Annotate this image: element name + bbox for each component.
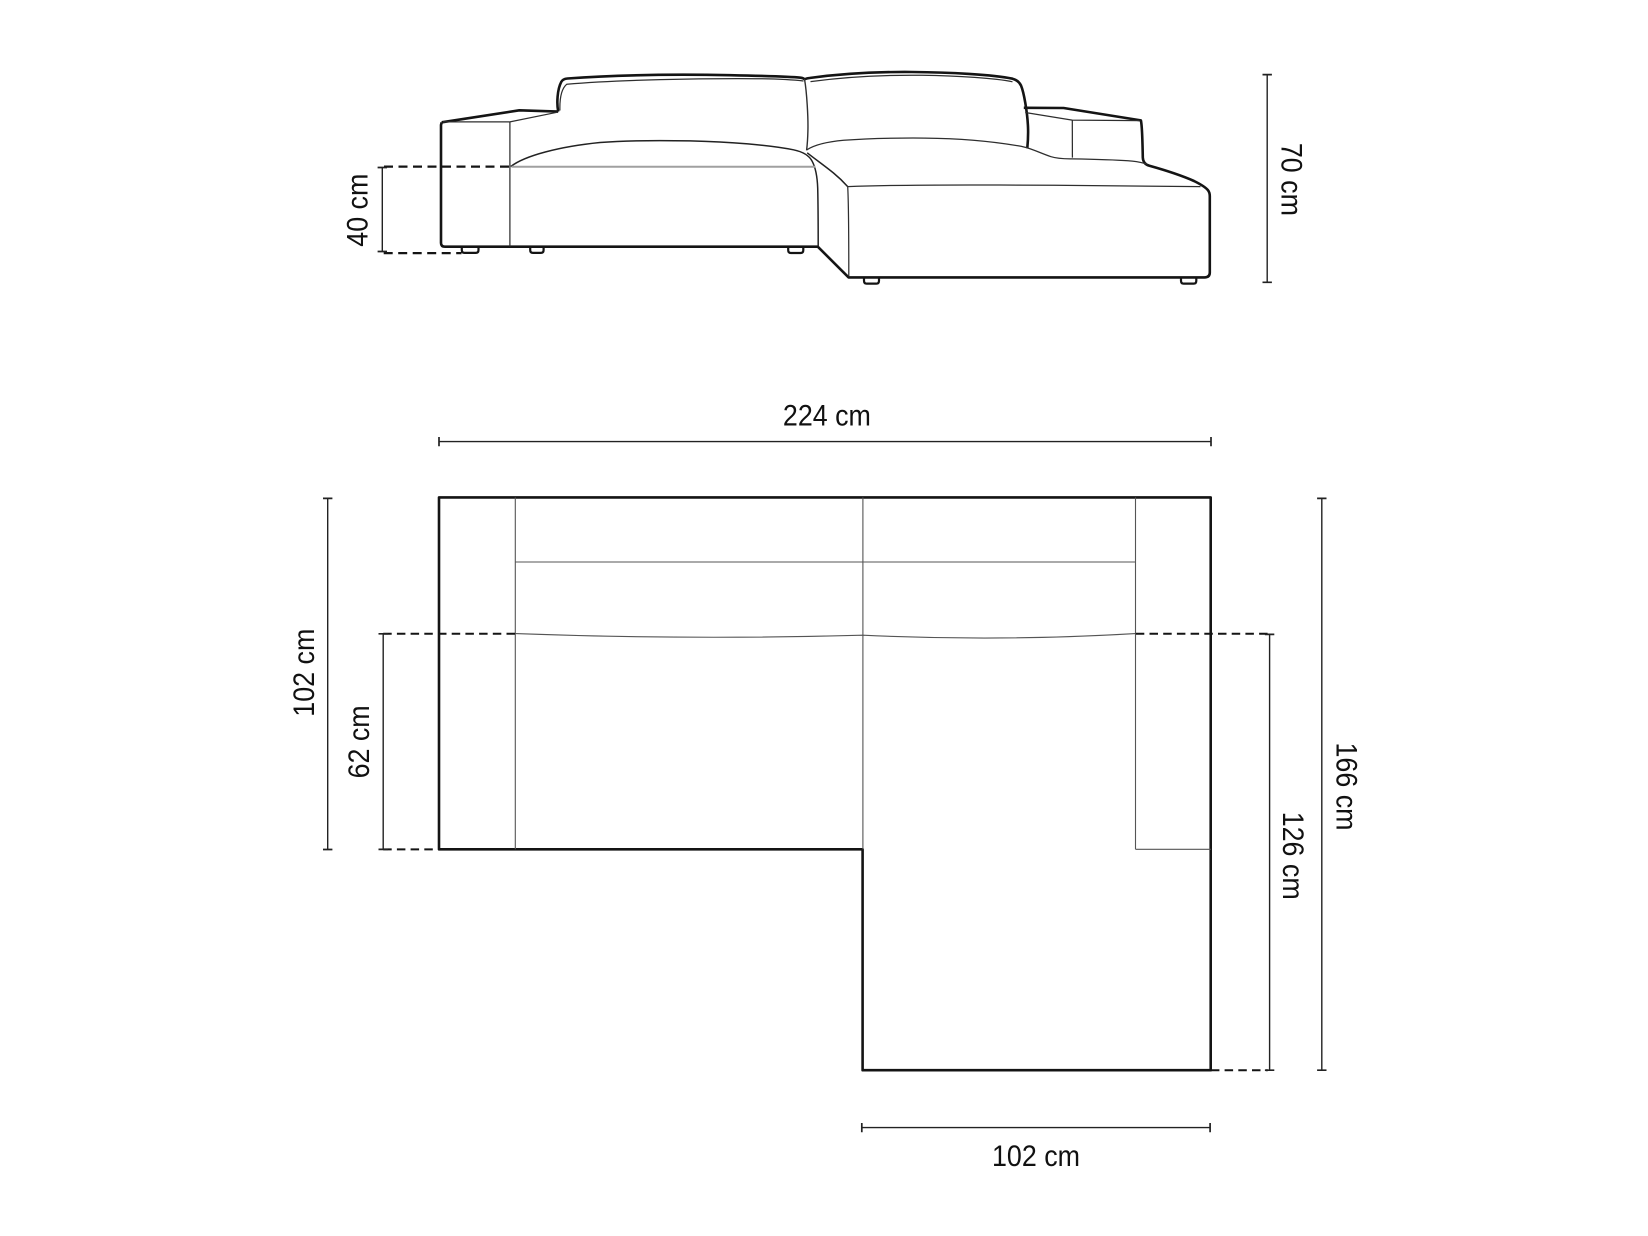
svg-text:166 cm: 166 cm [1330,743,1363,831]
svg-text:224 cm: 224 cm [783,400,871,433]
svg-text:102 cm: 102 cm [288,629,321,717]
svg-text:126 cm: 126 cm [1276,812,1309,900]
svg-text:62 cm: 62 cm [343,705,376,778]
svg-text:40 cm: 40 cm [342,174,375,247]
svg-text:70 cm: 70 cm [1275,143,1308,216]
svg-text:102 cm: 102 cm [992,1140,1080,1173]
